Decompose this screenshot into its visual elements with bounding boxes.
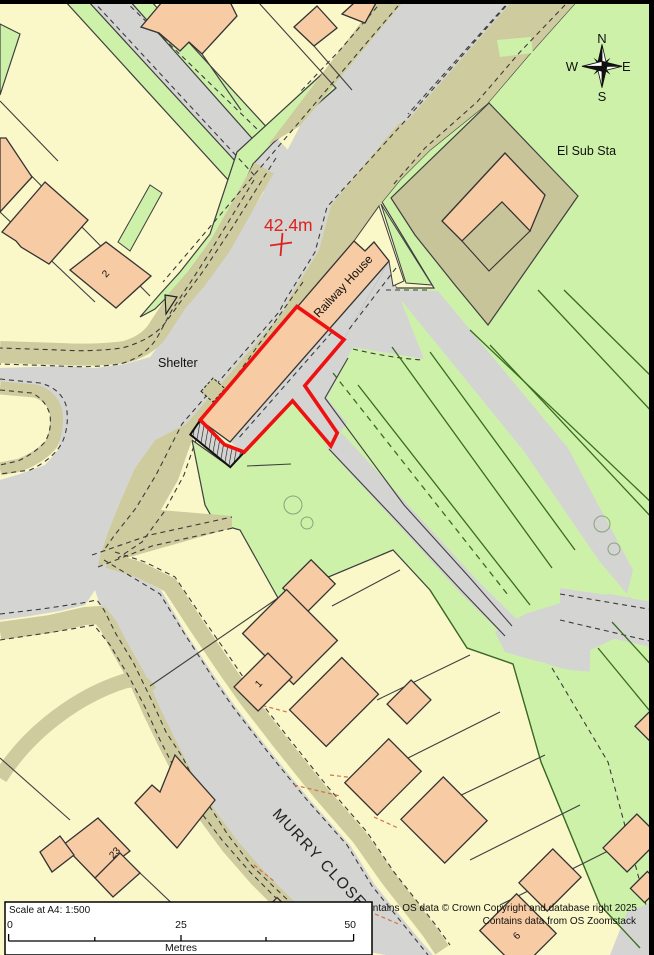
svg-text:S: S [598, 89, 607, 104]
svg-text:Metres: Metres [165, 942, 197, 954]
svg-text:50: 50 [344, 919, 356, 931]
svg-text:42.4m: 42.4m [264, 215, 313, 235]
svg-text:N: N [597, 31, 606, 46]
svg-text:W: W [566, 59, 579, 74]
svg-text:E: E [622, 59, 631, 74]
svg-text:Shelter: Shelter [158, 356, 198, 370]
svg-text:Contains OS data © Crown Copyr: Contains OS data © Crown Copyright and d… [360, 903, 637, 914]
svg-text:0: 0 [7, 919, 13, 931]
svg-text:El Sub Sta: El Sub Sta [557, 144, 616, 158]
svg-text:Scale at A4: 1:500: Scale at A4: 1:500 [9, 905, 91, 916]
svg-text:25: 25 [175, 919, 187, 931]
svg-text:Contains data from OS Zoomstac: Contains data from OS Zoomstack [483, 916, 637, 927]
